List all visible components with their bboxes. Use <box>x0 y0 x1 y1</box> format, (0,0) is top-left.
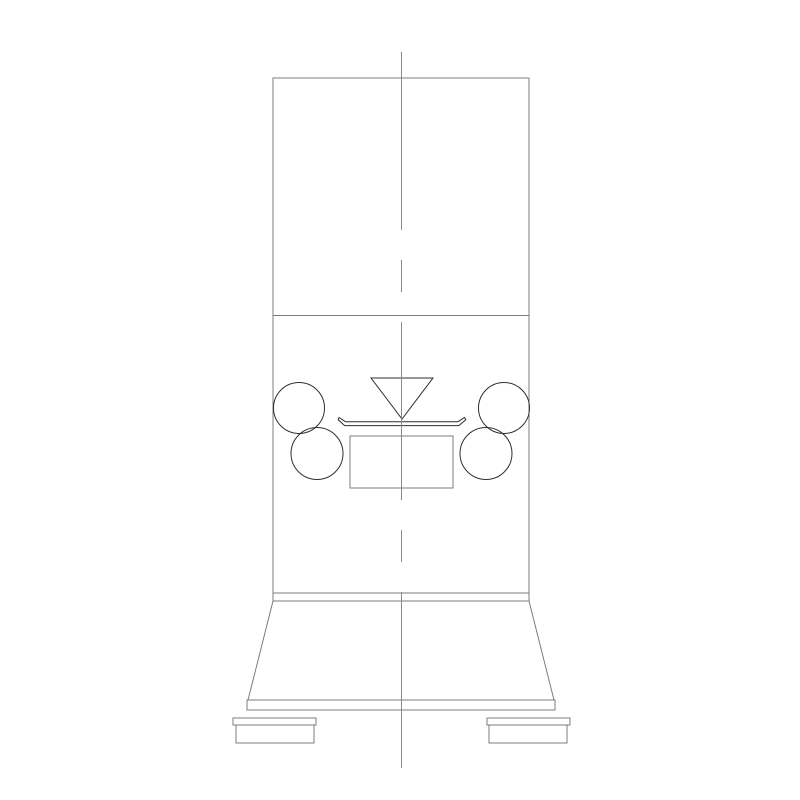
right-foot-flange <box>487 718 570 725</box>
right-foot-block <box>489 725 567 743</box>
roller-upper-left <box>274 383 325 434</box>
drawing-canvas <box>0 0 800 800</box>
roller-lower-right <box>460 428 512 480</box>
machine-front-view-drawing <box>0 0 800 800</box>
roller-upper-right <box>479 383 530 434</box>
left-foot-block <box>236 725 314 743</box>
roller-lower-left <box>291 428 343 480</box>
left-foot-flange <box>233 718 316 725</box>
